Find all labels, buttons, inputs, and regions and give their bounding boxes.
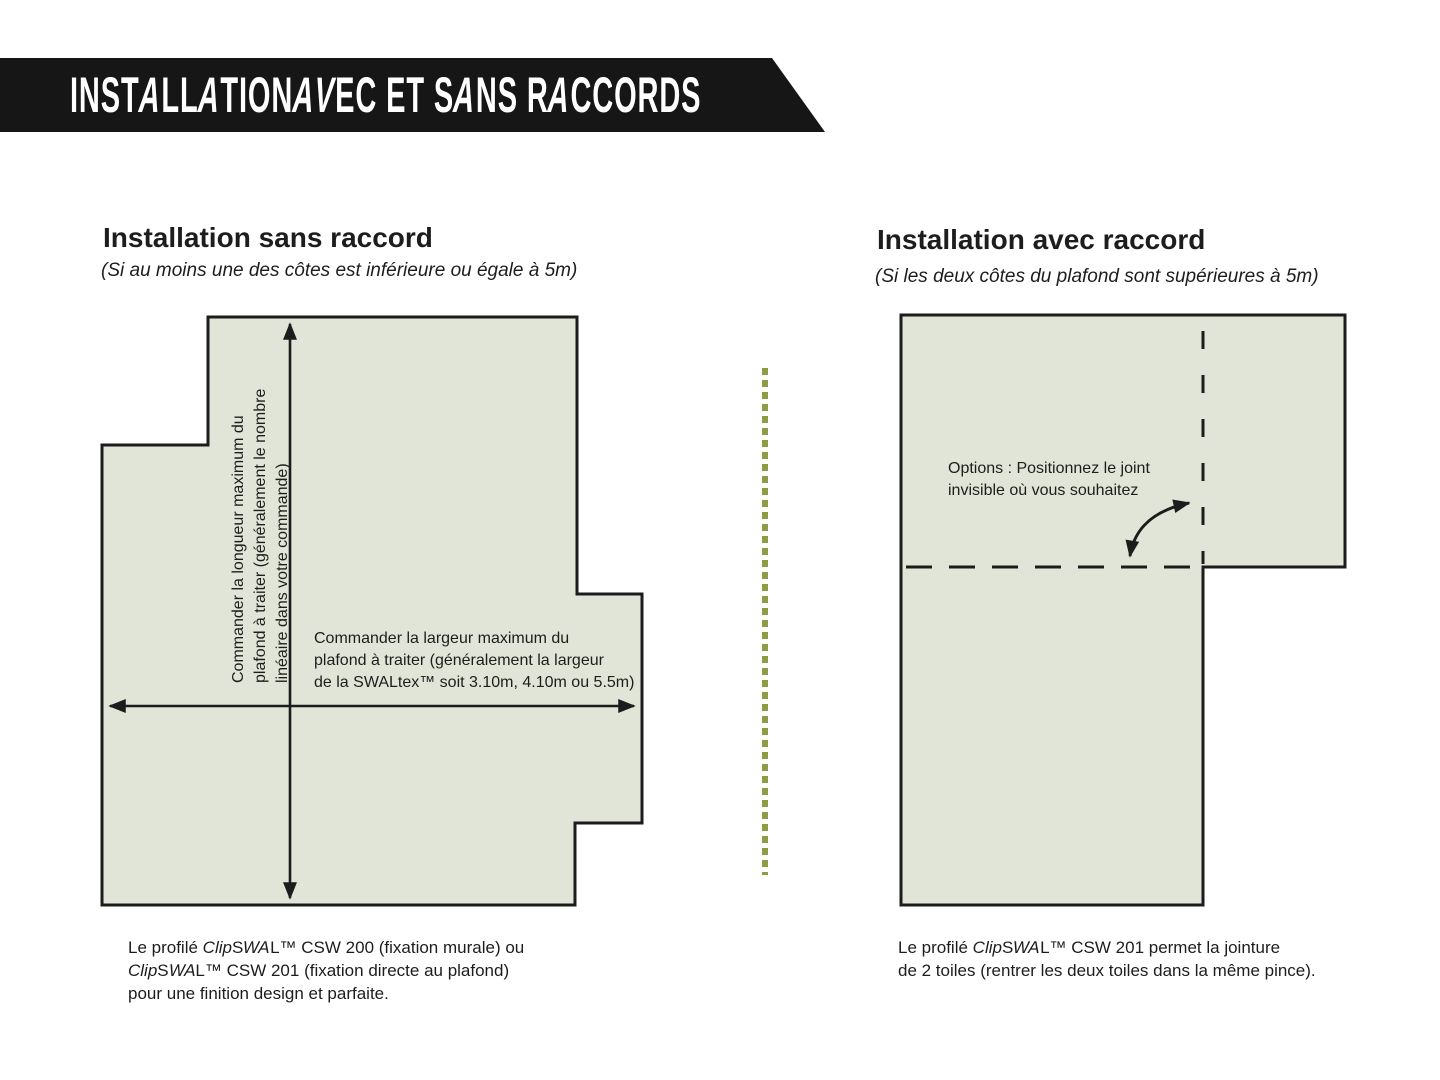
width-dimension-label: Commander la largeur maximum du plafond … [314, 628, 674, 694]
left-ceiling-shape [102, 317, 642, 905]
right-ceiling-diagram [895, 305, 1360, 915]
joint-options-label: Options : Positionnez le joint invisible… [948, 458, 1228, 502]
left-panel-subtitle: (Si au moins une des côtes est inférieur… [101, 260, 577, 282]
right-ceiling-shape [901, 315, 1345, 905]
left-ceiling-diagram [95, 305, 655, 915]
left-panel-title: Installation sans raccord [103, 222, 433, 254]
right-panel-subtitle: (Si les deux côtes du plafond sont supér… [875, 266, 1319, 288]
length-dimension-label: Commander la longueur maximum du plafond… [228, 343, 294, 683]
dotted-separator-line [762, 368, 768, 875]
title-banner: INSTALLATION AVEC ET SANS RACCORDS [0, 58, 825, 132]
page: INSTALLATION AVEC ET SANS RACCORDS Insta… [0, 0, 1440, 1080]
right-caption: Le profilé ClipSWAL™ CSW 201 permet la j… [898, 936, 1316, 982]
left-caption: Le profilé ClipSWAL™ CSW 200 (fixation m… [128, 936, 524, 1005]
right-panel-title: Installation avec raccord [877, 224, 1205, 256]
banner-title: INSTALLATION AVEC ET SANS RACCORDS [70, 58, 701, 132]
